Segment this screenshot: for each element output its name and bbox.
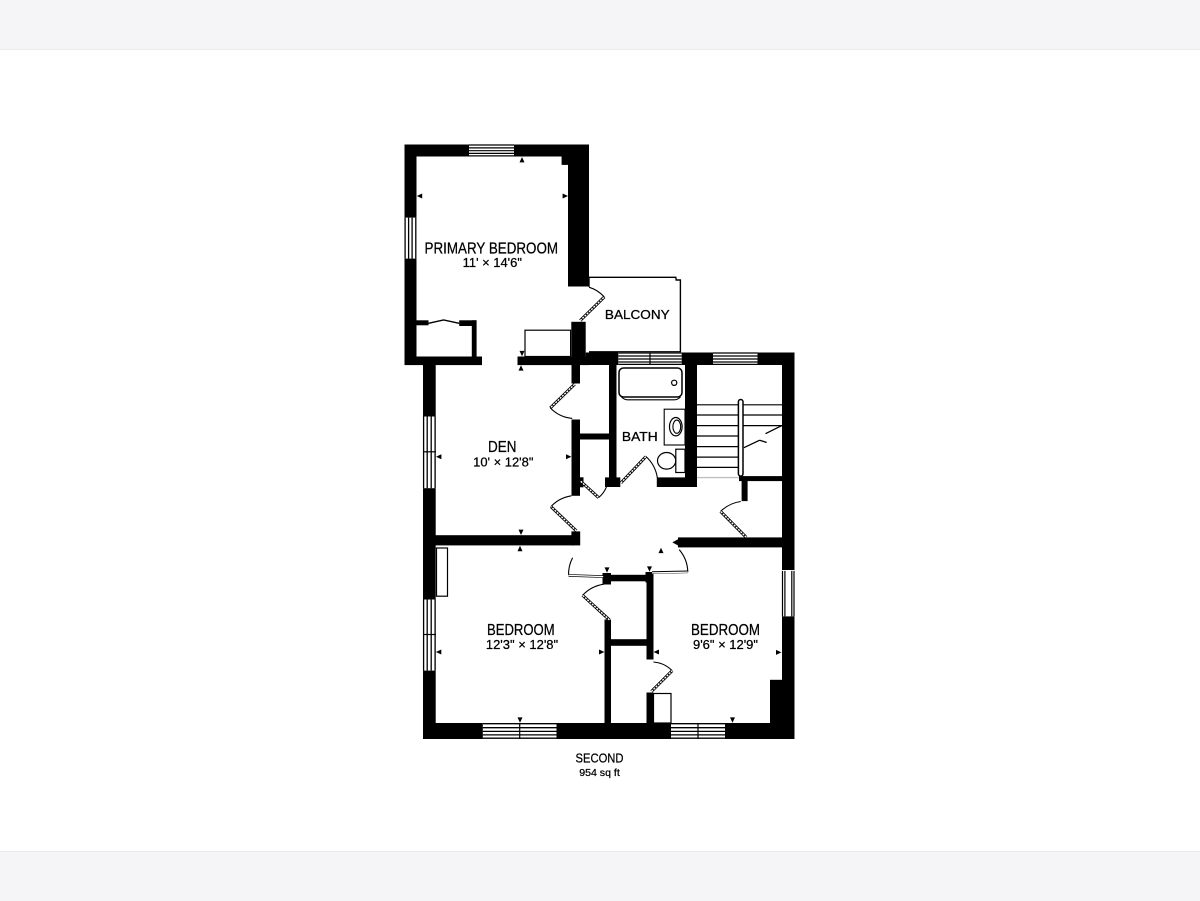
svg-text:BATH: BATH	[622, 430, 658, 444]
svg-text:10' × 12'8": 10' × 12'8"	[473, 455, 534, 470]
svg-text:BALCONY: BALCONY	[605, 308, 670, 322]
svg-text:12'3" × 12'8": 12'3" × 12'8"	[486, 637, 559, 652]
svg-text:SECOND: SECOND	[576, 751, 624, 766]
svg-text:11' × 14'6": 11' × 14'6"	[463, 255, 523, 270]
svg-text:954 sq ft: 954 sq ft	[579, 767, 620, 779]
svg-text:9'6" × 12'9": 9'6" × 12'9"	[693, 637, 758, 652]
svg-text:DEN: DEN	[488, 439, 517, 456]
